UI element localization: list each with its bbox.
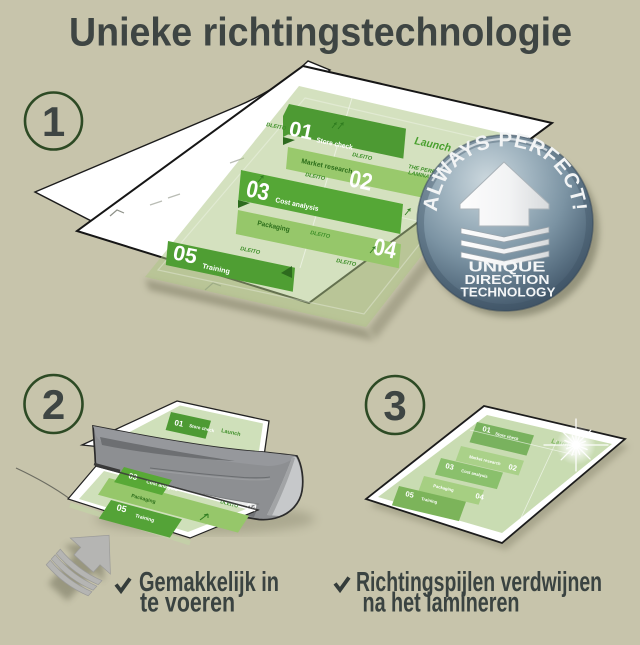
svg-text:05: 05 <box>171 241 200 269</box>
svg-text:01: 01 <box>287 117 316 145</box>
svg-text:Unieke richtingstechnologie: Unieke richtingstechnologie <box>69 11 572 55</box>
svg-text:2: 2 <box>42 381 65 428</box>
svg-text:TECHNOLOGY: TECHNOLOGY <box>461 286 557 300</box>
svg-text:na het lamineren: na het lamineren <box>363 587 520 618</box>
svg-text:1: 1 <box>42 98 65 145</box>
svg-text:3: 3 <box>383 382 406 429</box>
svg-text:te voeren: te voeren <box>140 587 235 618</box>
